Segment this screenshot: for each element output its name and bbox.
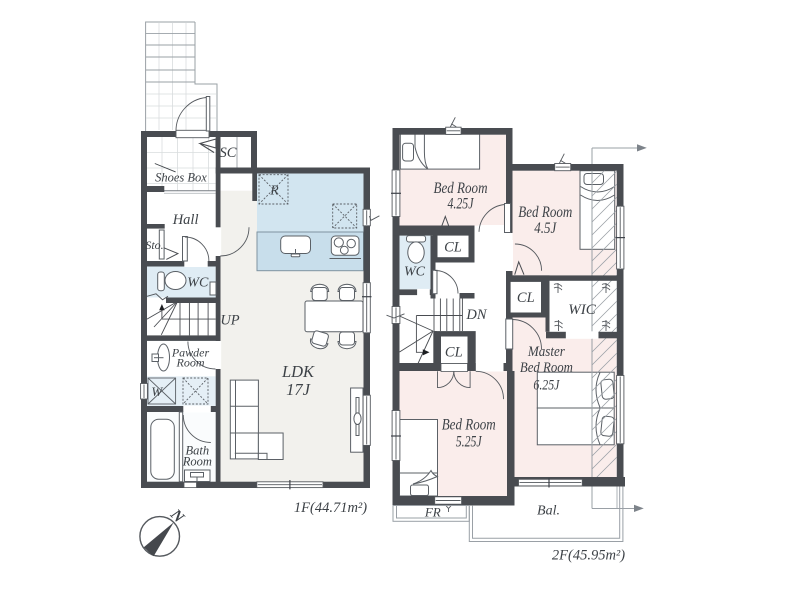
svg-text:4.5J: 4.5J [534,220,557,237]
svg-text:Hall: Hall [172,212,199,228]
svg-text:4.25J: 4.25J [448,195,475,212]
svg-text:Bed Room: Bed Room [520,360,573,376]
svg-text:Bal.: Bal. [537,504,560,519]
svg-text:WC: WC [187,276,209,291]
svg-text:6.25J: 6.25J [533,378,560,394]
svg-text:LDK: LDK [281,362,315,381]
svg-text:DN: DN [465,307,487,323]
svg-text:Sto.: Sto. [145,238,163,252]
svg-text:WC: WC [404,265,426,280]
svg-text:W: W [151,384,163,399]
svg-text:R: R [269,183,279,198]
svg-text:CL: CL [517,290,535,306]
svg-text:Room: Room [176,356,205,370]
svg-text:CL: CL [444,240,462,256]
svg-text:Master: Master [527,344,565,360]
svg-text:17J: 17J [286,380,311,399]
svg-text:SC: SC [220,145,237,161]
svg-text:FR: FR [424,505,441,520]
svg-text:Shoes Box: Shoes Box [155,171,207,185]
svg-text:Bed Room: Bed Room [518,204,572,221]
svg-text:2F(45.95m²): 2F(45.95m²) [552,548,625,564]
svg-text:UP: UP [220,313,239,329]
svg-text:1F(44.71m²): 1F(44.71m²) [294,500,367,516]
svg-text:5.25J: 5.25J [456,434,483,451]
svg-text:CL: CL [445,345,463,361]
svg-text:Room: Room [182,454,212,468]
svg-text:Bed Room: Bed Room [442,417,496,434]
svg-text:WIC: WIC [568,302,596,318]
